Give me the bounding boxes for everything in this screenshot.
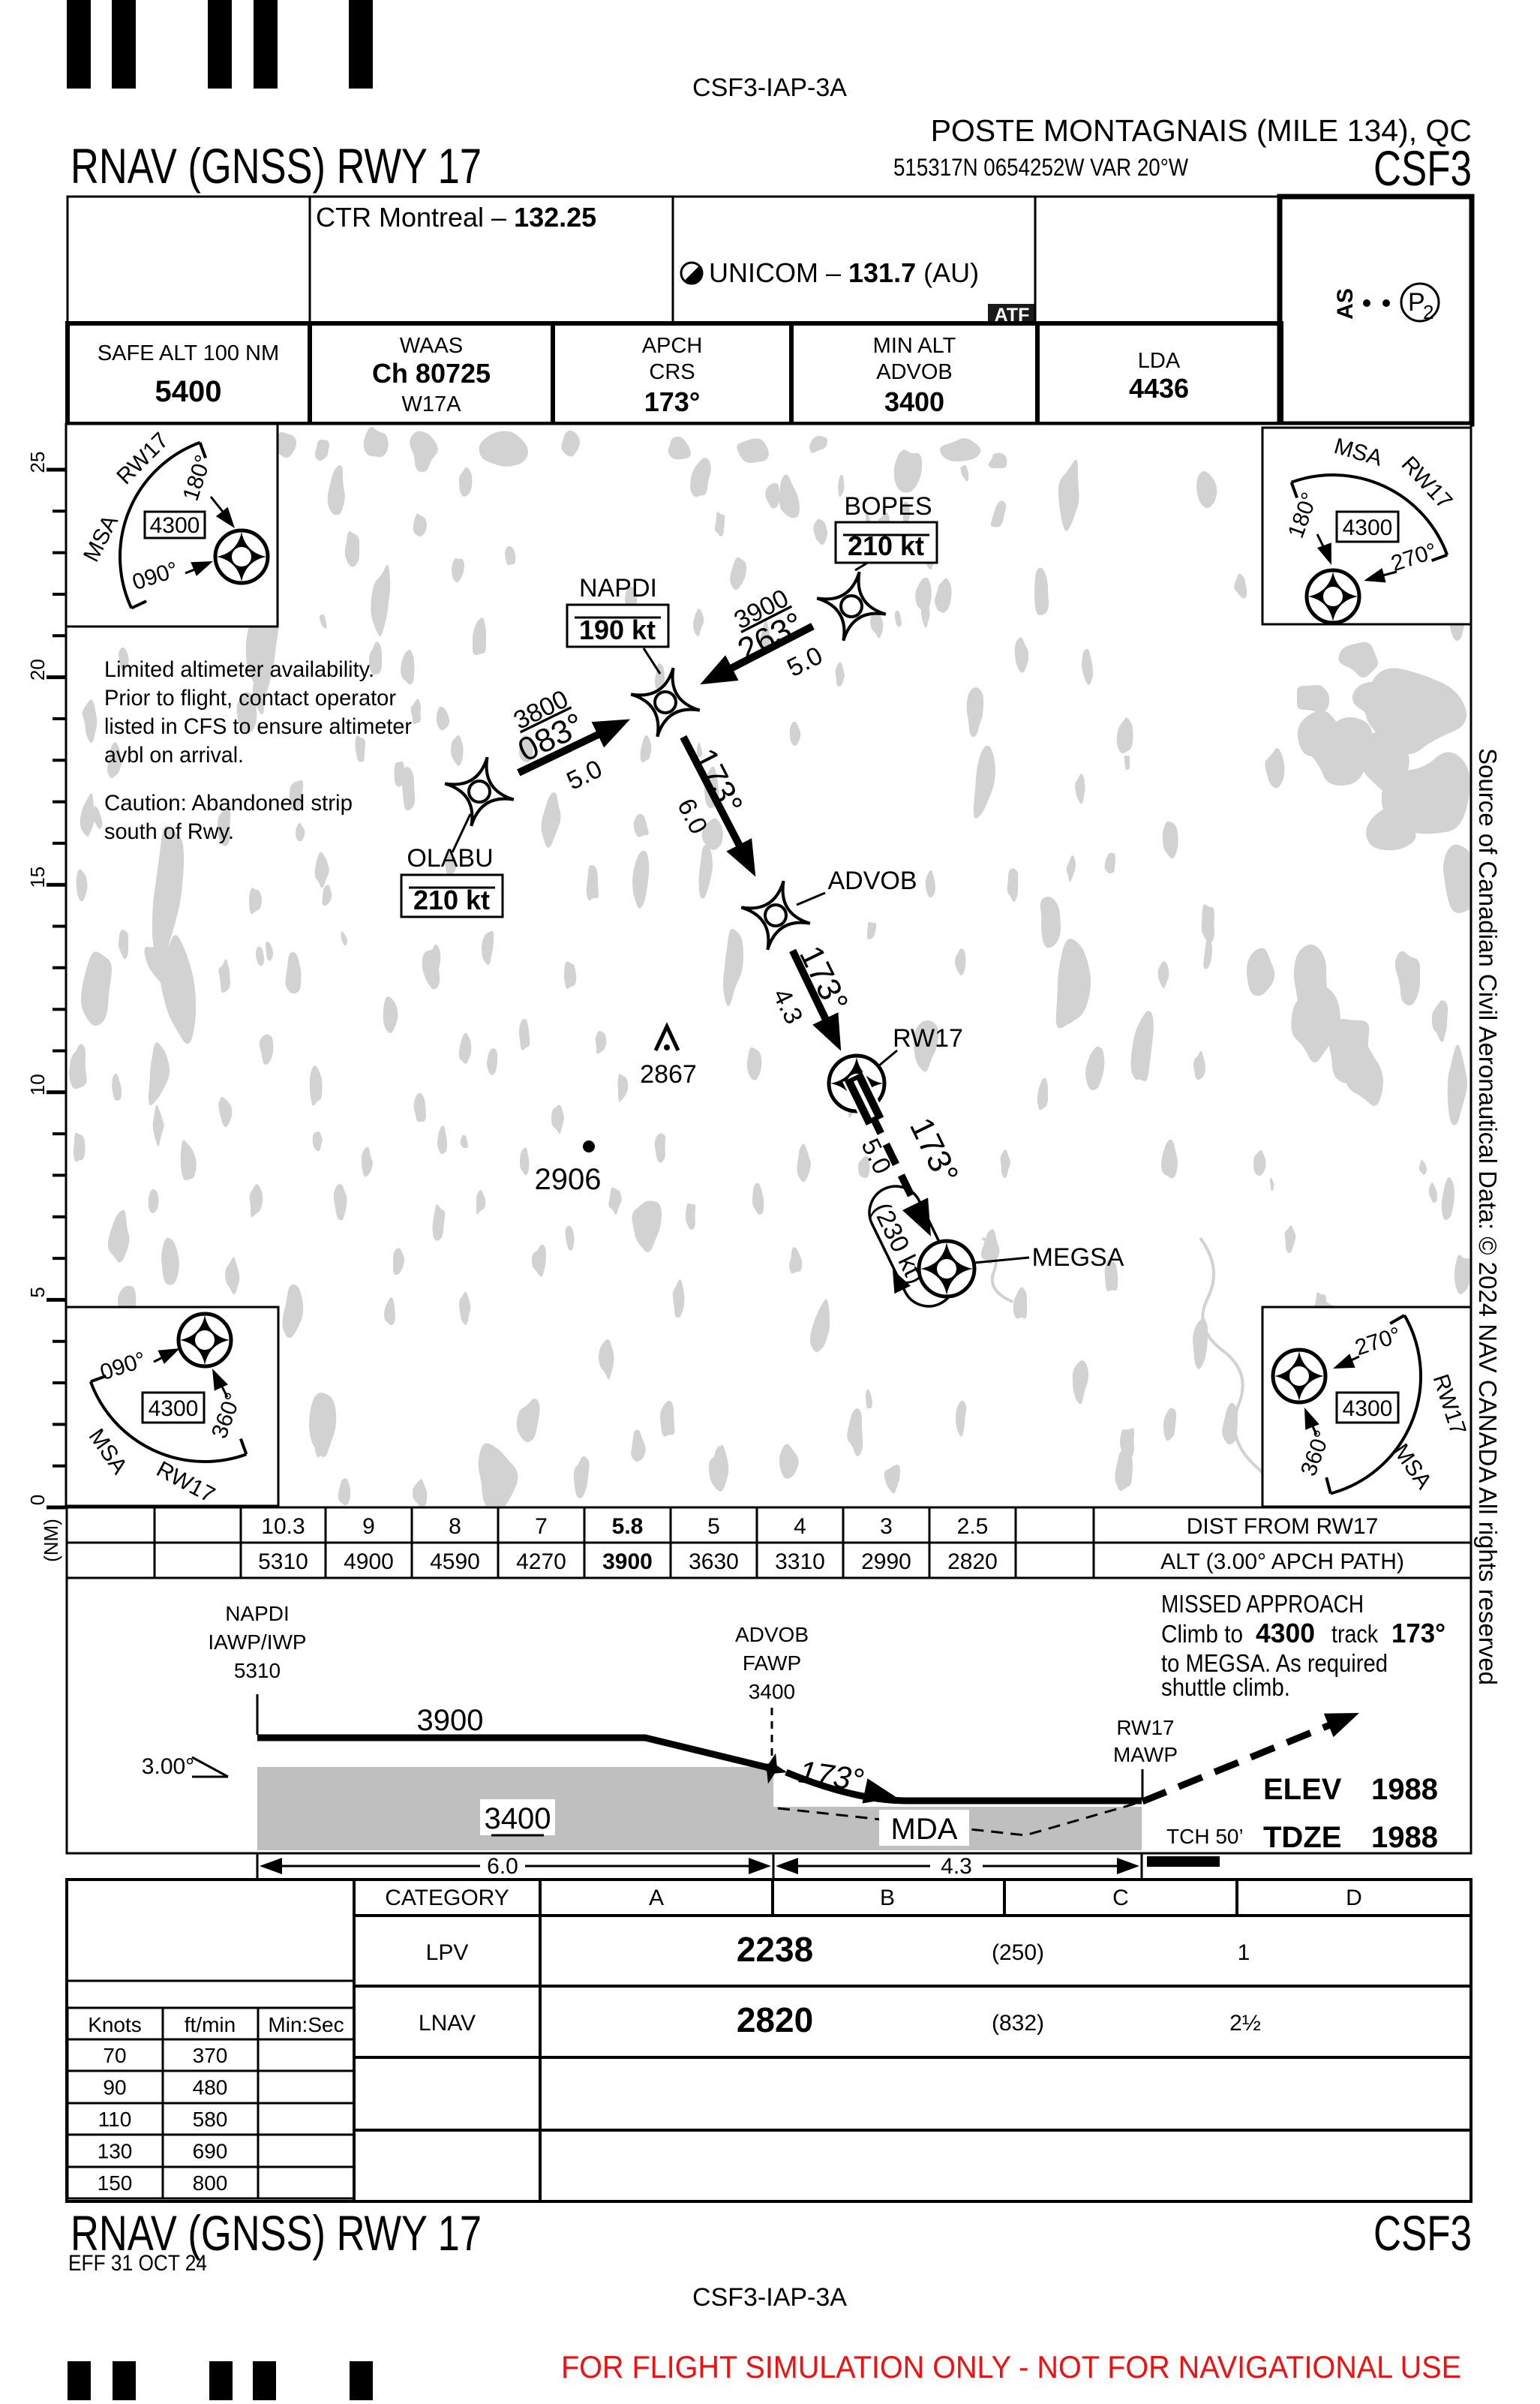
svg-text:1: 1 xyxy=(1238,1940,1250,1965)
svg-text:Limited altimeter availability: Limited altimeter availability. xyxy=(104,657,374,682)
svg-text:150: 150 xyxy=(98,2171,133,2195)
svg-text:8: 8 xyxy=(449,1514,461,1539)
svg-text:OLABU: OLABU xyxy=(407,844,493,873)
svg-text:TDZE: TDZE xyxy=(1263,1821,1341,1854)
svg-text:4300: 4300 xyxy=(1256,1618,1315,1648)
svg-text:10: 10 xyxy=(26,1074,49,1095)
svg-text:A: A xyxy=(649,1886,664,1910)
svg-text:2990: 2990 xyxy=(861,1549,911,1574)
svg-text:UNICOM – 131.7 (AU): UNICOM – 131.7 (AU) xyxy=(709,257,979,288)
svg-text:3310: 3310 xyxy=(775,1549,825,1574)
svg-text:173°: 173° xyxy=(644,386,700,417)
svg-text:south of Rwy.: south of Rwy. xyxy=(104,819,234,844)
svg-text:1988: 1988 xyxy=(1371,1773,1438,1806)
svg-text:90: 90 xyxy=(103,2076,126,2099)
svg-text:track: track xyxy=(1331,1620,1378,1648)
svg-text:ALT (3.00° APCH PATH): ALT (3.00° APCH PATH) xyxy=(1160,1549,1404,1574)
svg-text:CRS: CRS xyxy=(649,360,695,384)
svg-text:3900: 3900 xyxy=(602,1549,653,1574)
svg-text:shuttle climb.: shuttle climb. xyxy=(1161,1673,1290,1701)
svg-text:690: 690 xyxy=(193,2140,228,2163)
svg-text:4300: 4300 xyxy=(1343,1396,1393,1421)
svg-text:70: 70 xyxy=(103,2044,126,2067)
svg-text:3.00°: 3.00° xyxy=(142,1754,194,1779)
svg-text:110: 110 xyxy=(98,2108,132,2131)
svg-text:RW17: RW17 xyxy=(1116,1716,1174,1739)
svg-text:5310: 5310 xyxy=(234,1659,281,1682)
svg-text:515317N 0654252W VAR 20°W: 515317N 0654252W VAR 20°W xyxy=(893,154,1189,181)
svg-text:LPV: LPV xyxy=(426,1940,469,1965)
svg-text:Ch 80725: Ch 80725 xyxy=(372,358,491,389)
svg-text:CSF3: CSF3 xyxy=(1373,2205,1472,2261)
svg-text:ADVOB: ADVOB xyxy=(876,360,953,384)
svg-text:SAFE ALT 100 NM: SAFE ALT 100 NM xyxy=(98,341,279,365)
svg-text:ADVOB: ADVOB xyxy=(827,867,917,895)
svg-text:DIST FROM RW17: DIST FROM RW17 xyxy=(1187,1514,1379,1539)
svg-text:LNAV: LNAV xyxy=(419,2011,476,2036)
svg-text:5: 5 xyxy=(707,1514,720,1539)
svg-text:CSF3-IAP-3A: CSF3-IAP-3A xyxy=(692,74,847,102)
svg-text:370: 370 xyxy=(193,2044,228,2067)
svg-text:15: 15 xyxy=(26,867,49,888)
svg-text:4300: 4300 xyxy=(150,513,200,538)
svg-text:190 kt: 190 kt xyxy=(579,615,656,645)
svg-text:2867: 2867 xyxy=(640,1060,697,1089)
svg-text:B: B xyxy=(880,1886,895,1910)
svg-text:BOPES: BOPES xyxy=(844,492,932,521)
svg-text:FAWP: FAWP xyxy=(743,1651,801,1675)
svg-text:580: 580 xyxy=(193,2108,228,2131)
svg-text:25: 25 xyxy=(26,452,49,473)
svg-text:Knots: Knots xyxy=(88,2013,142,2036)
svg-text:210 kt: 210 kt xyxy=(848,530,924,561)
svg-text:MIN ALT: MIN ALT xyxy=(873,334,956,358)
svg-text:7: 7 xyxy=(535,1514,548,1539)
svg-text:IAWP/IWP: IAWP/IWP xyxy=(208,1630,306,1654)
svg-text:4900: 4900 xyxy=(344,1549,394,1574)
svg-text:173°: 173° xyxy=(1391,1618,1445,1648)
svg-text:RW17: RW17 xyxy=(893,1024,963,1053)
svg-text:AS: AS xyxy=(1333,288,1358,320)
svg-text:MAWP: MAWP xyxy=(1113,1743,1178,1766)
svg-text:5: 5 xyxy=(26,1287,49,1297)
svg-text:ft/min: ft/min xyxy=(185,2013,236,2036)
svg-text:210 kt: 210 kt xyxy=(413,885,490,915)
svg-text:3400: 3400 xyxy=(485,1802,551,1835)
svg-text:2: 2 xyxy=(1423,301,1433,323)
svg-text:4.3: 4.3 xyxy=(941,1854,972,1879)
svg-text:3: 3 xyxy=(880,1514,893,1539)
svg-text:CSF3-IAP-3A: CSF3-IAP-3A xyxy=(692,2283,847,2312)
svg-text:(NM): (NM) xyxy=(40,1519,62,1562)
svg-text:NAPDI: NAPDI xyxy=(225,1602,290,1625)
svg-text:20: 20 xyxy=(26,659,49,681)
svg-text:3630: 3630 xyxy=(689,1549,739,1574)
svg-text:5400: 5400 xyxy=(155,375,222,408)
svg-text:Prior to flight, contact opera: Prior to flight, contact operator xyxy=(104,686,396,711)
svg-text:avbl on arrival.: avbl on arrival. xyxy=(104,743,244,768)
svg-text:130: 130 xyxy=(98,2140,133,2163)
svg-text:listed in CFS to ensure altime: listed in CFS to ensure altimeter xyxy=(104,714,412,739)
svg-text:Source of Canadian Civil Aeron: Source of Canadian Civil Aeronautical Da… xyxy=(1474,748,1502,1685)
svg-text:4: 4 xyxy=(794,1514,806,1539)
svg-text:C: C xyxy=(1112,1886,1129,1910)
svg-text:LDA: LDA xyxy=(1138,349,1181,373)
svg-text:ADVOB: ADVOB xyxy=(735,1623,809,1646)
svg-text:CSF3: CSF3 xyxy=(1373,140,1472,196)
svg-text:9: 9 xyxy=(362,1514,375,1539)
svg-text:Climb to: Climb to xyxy=(1161,1620,1243,1648)
svg-text:CATEGORY: CATEGORY xyxy=(385,1886,509,1910)
svg-text:4436: 4436 xyxy=(1129,373,1189,404)
svg-text:2906: 2906 xyxy=(535,1163,602,1196)
svg-text:3900: 3900 xyxy=(417,1704,484,1737)
svg-text:WAAS: WAAS xyxy=(400,334,463,358)
svg-text:TCH 50’: TCH 50’ xyxy=(1166,1825,1244,1848)
svg-text:4590: 4590 xyxy=(430,1549,480,1574)
svg-text:Min:Sec: Min:Sec xyxy=(268,2013,344,2036)
svg-text:RNAV (GNSS) RWY 17: RNAV (GNSS) RWY 17 xyxy=(71,138,482,194)
svg-text:FOR FLIGHT SIMULATION ONLY - N: FOR FLIGHT SIMULATION ONLY - NOT FOR NAV… xyxy=(561,2349,1461,2384)
svg-text:2½: 2½ xyxy=(1229,2011,1261,2036)
svg-text:CTR Montreal – 132.25: CTR Montreal – 132.25 xyxy=(316,202,596,233)
svg-text:2.5: 2.5 xyxy=(957,1514,989,1539)
svg-text:0: 0 xyxy=(26,1495,49,1505)
svg-text:3400: 3400 xyxy=(884,386,944,417)
svg-text:2820: 2820 xyxy=(947,1549,998,1574)
svg-text:5.8: 5.8 xyxy=(612,1514,644,1539)
svg-text:APCH: APCH xyxy=(642,334,703,358)
svg-text:800: 800 xyxy=(193,2171,228,2195)
svg-text:MDA: MDA xyxy=(891,1813,958,1846)
svg-text:1988: 1988 xyxy=(1371,1821,1438,1854)
svg-text:MEGSA: MEGSA xyxy=(1032,1243,1124,1272)
svg-text:6.0: 6.0 xyxy=(487,1854,518,1879)
svg-text:MISSED APPROACH: MISSED APPROACH xyxy=(1161,1590,1364,1618)
svg-text:(832): (832) xyxy=(992,2011,1044,2036)
svg-text:5310: 5310 xyxy=(258,1549,308,1574)
svg-text:480: 480 xyxy=(193,2076,228,2099)
svg-text:NAPDI: NAPDI xyxy=(579,574,657,603)
svg-text:3400: 3400 xyxy=(749,1680,795,1703)
svg-text:D: D xyxy=(1346,1886,1362,1910)
svg-text:4300: 4300 xyxy=(1343,515,1393,540)
svg-text:ELEV: ELEV xyxy=(1263,1773,1342,1806)
svg-text:4270: 4270 xyxy=(516,1549,566,1574)
svg-text:Caution: Abandoned strip: Caution: Abandoned strip xyxy=(104,791,353,816)
svg-text:2820: 2820 xyxy=(737,2000,813,2039)
svg-text:EFF 31 OCT 24: EFF 31 OCT 24 xyxy=(68,2251,207,2276)
svg-text:(250): (250) xyxy=(992,1940,1044,1965)
svg-text:4300: 4300 xyxy=(149,1396,199,1421)
svg-text:W17A: W17A xyxy=(402,392,462,416)
svg-text:10.3: 10.3 xyxy=(261,1514,305,1539)
svg-text:2238: 2238 xyxy=(737,1930,813,1969)
